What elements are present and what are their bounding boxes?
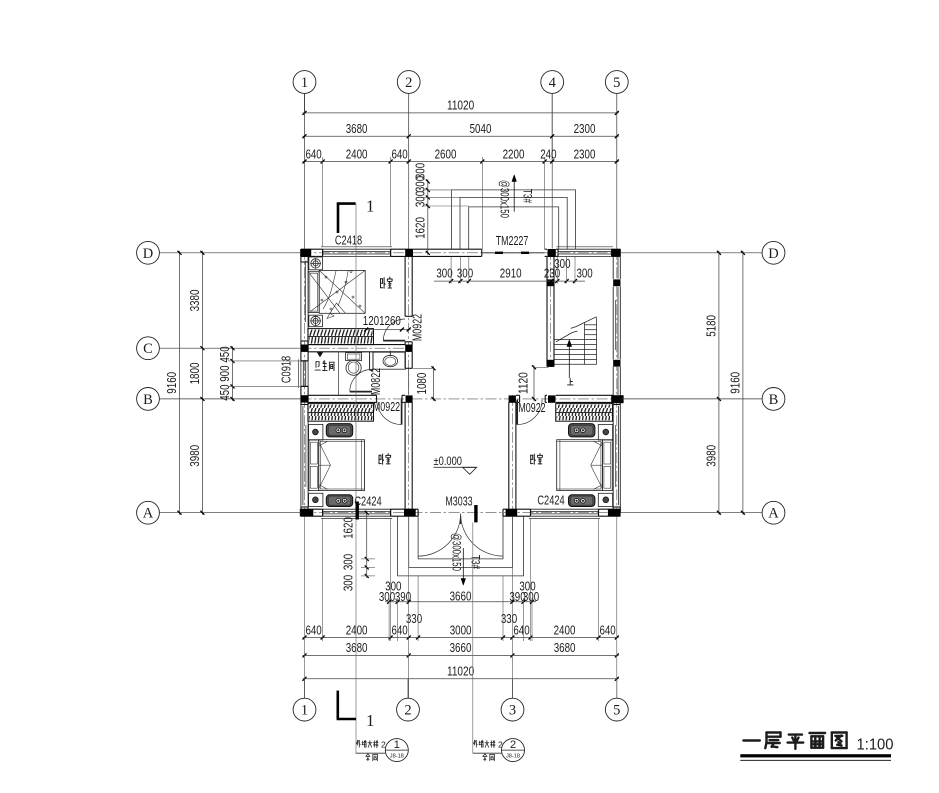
svg-text:1080: 1080 — [414, 373, 429, 395]
svg-text:300: 300 — [457, 266, 473, 281]
svg-text:1800: 1800 — [187, 363, 202, 385]
svg-text:2300: 2300 — [574, 121, 596, 136]
svg-text:2400: 2400 — [346, 622, 368, 637]
svg-text:3680: 3680 — [346, 121, 368, 136]
svg-text:5: 5 — [613, 703, 620, 719]
svg-text:1201260: 1201260 — [363, 313, 401, 328]
svg-text:@300x150: @300x150 — [497, 180, 509, 218]
svg-text:M0922: M0922 — [410, 314, 425, 341]
svg-text:9160: 9160 — [164, 372, 179, 394]
svg-text:1: 1 — [394, 739, 400, 751]
svg-text:300: 300 — [341, 575, 356, 591]
svg-text:TM2227: TM2227 — [496, 233, 529, 248]
svg-text:1620: 1620 — [341, 517, 356, 539]
svg-text:J8-18: J8-18 — [506, 754, 520, 760]
svg-text:D: D — [143, 246, 153, 262]
svg-text:300: 300 — [523, 589, 539, 604]
svg-text:A: A — [143, 506, 154, 522]
svg-text:11020: 11020 — [447, 664, 474, 679]
svg-text:C2418: C2418 — [335, 233, 362, 248]
svg-text:1: 1 — [301, 75, 308, 91]
svg-text:450: 450 — [217, 384, 232, 400]
svg-text:5: 5 — [613, 75, 620, 91]
svg-text:1: 1 — [301, 703, 308, 719]
svg-text:B: B — [769, 392, 779, 408]
svg-text:3680: 3680 — [554, 640, 576, 655]
svg-text:1: 1 — [366, 197, 375, 216]
svg-text:M3033: M3033 — [445, 494, 472, 509]
svg-text:1:100: 1:100 — [857, 737, 894, 754]
svg-text:240: 240 — [540, 146, 556, 161]
svg-text:300: 300 — [436, 266, 452, 281]
svg-text:2200: 2200 — [503, 146, 525, 161]
svg-text:A: A — [768, 506, 779, 522]
svg-text:3: 3 — [509, 703, 516, 719]
svg-text:900: 900 — [217, 365, 232, 381]
svg-text:2: 2 — [498, 740, 503, 750]
svg-text:4: 4 — [549, 75, 557, 91]
svg-text:300: 300 — [379, 589, 395, 604]
svg-text:3680: 3680 — [346, 640, 368, 655]
svg-text:1: 1 — [366, 711, 375, 730]
svg-text:640: 640 — [599, 622, 615, 637]
svg-text:M0922: M0922 — [373, 399, 400, 414]
svg-text:330: 330 — [406, 611, 422, 626]
svg-text:3380: 3380 — [187, 290, 202, 312]
svg-text:T3#: T3# — [469, 555, 481, 570]
svg-text:390: 390 — [395, 589, 411, 604]
svg-text:M0822: M0822 — [368, 368, 383, 395]
svg-text:2300: 2300 — [574, 146, 596, 161]
svg-text:J8-18: J8-18 — [390, 754, 404, 760]
svg-text:C0918: C0918 — [279, 356, 294, 383]
svg-text:3980: 3980 — [704, 445, 719, 467]
svg-text:300: 300 — [576, 266, 592, 281]
svg-text:2600: 2600 — [435, 146, 457, 161]
svg-text:9160: 9160 — [728, 372, 743, 394]
svg-text:2400: 2400 — [554, 622, 576, 637]
svg-text:1120: 1120 — [515, 372, 530, 394]
svg-text:640: 640 — [305, 146, 321, 161]
svg-text:5040: 5040 — [470, 121, 492, 136]
svg-text:T3#: T3# — [521, 189, 533, 204]
svg-text:2910: 2910 — [500, 266, 522, 281]
svg-text:M0922: M0922 — [518, 400, 545, 415]
svg-text:11020: 11020 — [447, 98, 474, 113]
svg-text:2: 2 — [510, 739, 516, 751]
svg-text:3000: 3000 — [450, 622, 472, 637]
svg-text:450: 450 — [217, 346, 232, 362]
svg-text:2400: 2400 — [346, 146, 368, 161]
svg-text:640: 640 — [391, 146, 407, 161]
svg-text:300: 300 — [554, 256, 570, 271]
svg-text:@300x150: @300x150 — [450, 533, 462, 571]
svg-text:D: D — [768, 246, 778, 262]
svg-text:300: 300 — [341, 554, 356, 570]
svg-text:±0.000: ±0.000 — [434, 454, 463, 468]
svg-text:C: C — [143, 341, 153, 357]
svg-text:1620: 1620 — [412, 217, 427, 239]
svg-text:5180: 5180 — [704, 315, 719, 337]
svg-text:C2424: C2424 — [537, 493, 564, 508]
svg-text:3980: 3980 — [187, 445, 202, 467]
svg-text:640: 640 — [305, 622, 321, 637]
svg-text:2: 2 — [405, 75, 412, 91]
svg-text:2: 2 — [404, 703, 411, 719]
svg-text:3660: 3660 — [450, 640, 472, 655]
svg-text:300: 300 — [412, 191, 427, 207]
svg-text:3660: 3660 — [450, 589, 472, 604]
svg-text:B: B — [143, 392, 153, 408]
